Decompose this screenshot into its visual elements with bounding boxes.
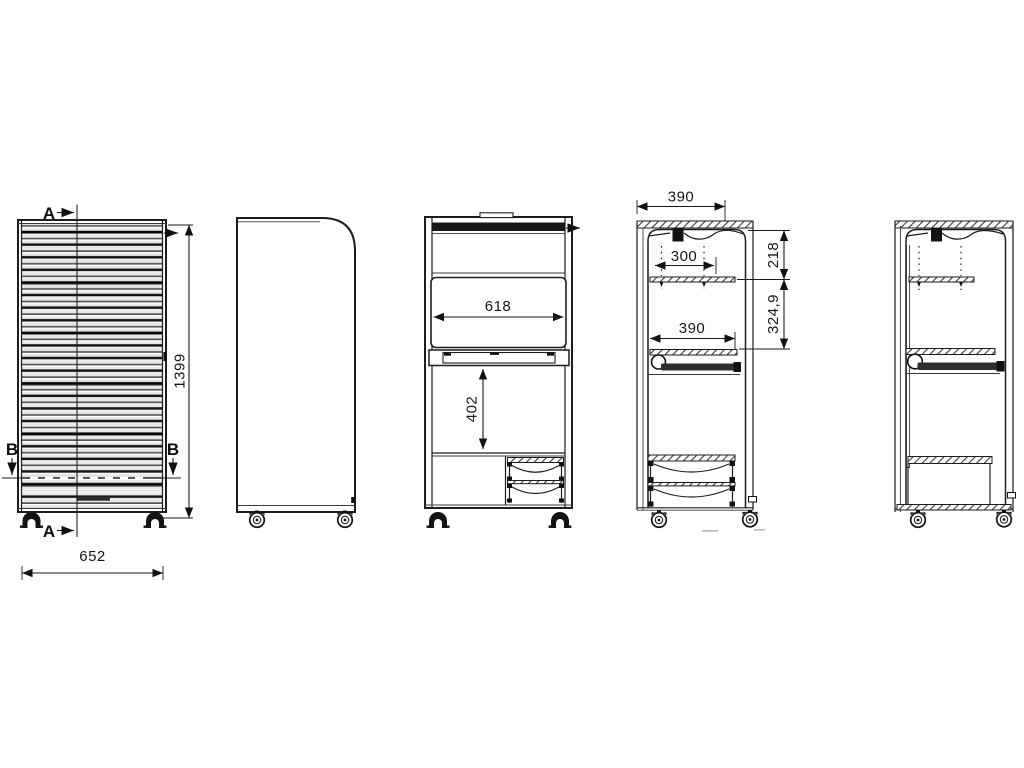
caster-icon — [250, 511, 265, 528]
pullout-tray-shelf — [650, 350, 737, 356]
caster-icon — [144, 512, 167, 528]
cabinet-body — [237, 218, 355, 512]
caster-icon — [652, 511, 667, 528]
caster-icon — [338, 511, 353, 528]
pullout-tray-shelf — [906, 349, 995, 355]
dimension-overall-height: 1399 — [160, 225, 193, 518]
dimension-overall-width: 652 — [22, 548, 163, 580]
section-label-a-top: A — [43, 204, 55, 223]
ground-mark — [754, 529, 765, 531]
top-panel-cut — [637, 221, 753, 228]
upper-shelf — [650, 277, 735, 287]
ground-mark — [702, 530, 718, 532]
section-label-b-left: B — [6, 440, 18, 459]
caster-mount — [1008, 493, 1016, 499]
dim-label-shelf-pin-span: 300 — [671, 248, 698, 265]
section-label-b-right: B — [167, 440, 179, 459]
side-section-view-b: 300 218 324,9 390 — [637, 189, 790, 532]
dim-label-shelf-to-tray: 324,9 — [765, 294, 782, 334]
front-section-view: 618 402 — [425, 213, 580, 528]
door-catch — [351, 497, 355, 503]
top-tab — [480, 213, 513, 218]
dim-label-height: 1399 — [172, 353, 189, 388]
upper-shelf — [909, 277, 974, 287]
bottom-panel-cut — [897, 505, 1011, 511]
dimension-tray-depth: 390 — [650, 320, 735, 352]
tray-slide-rod — [648, 355, 741, 375]
caster-mount — [749, 497, 757, 503]
dim-label-knee-clearance: 402 — [464, 396, 481, 423]
dim-label-top-to-shelf: 218 — [765, 242, 782, 269]
tambour-roll — [432, 223, 565, 232]
dim-label-width: 652 — [79, 548, 106, 565]
door-lock — [164, 352, 167, 361]
keyboard-tray — [429, 350, 569, 366]
caster-icon — [427, 512, 450, 528]
dimension-shelf-pin-span: 300 — [655, 248, 716, 274]
tray-slide-rod — [906, 354, 1005, 373]
cabinet-five-view-drawing: B B A A 1399 652 — [0, 0, 1024, 768]
dimension-knee-clearance: 402 — [464, 369, 484, 449]
cpu-compartment — [908, 457, 992, 505]
paper-tray-drawers — [648, 455, 735, 507]
dim-label-top-depth: 390 — [668, 189, 695, 206]
tambour-curve — [649, 230, 743, 239]
side-section-view-a — [895, 221, 1016, 527]
door-handle — [77, 497, 110, 501]
door-stop-tab — [931, 228, 942, 242]
dim-label-interior-width: 618 — [485, 298, 512, 315]
shelf-pin-holes — [919, 246, 961, 290]
top-panel-cut — [895, 221, 1013, 228]
tambour-door — [22, 224, 163, 508]
caster-icon — [549, 512, 572, 528]
caster-icon — [997, 510, 1012, 527]
dimension-shelf-to-tray: 324,9 — [739, 280, 790, 350]
caster-icon — [911, 511, 926, 528]
door-stop-tab — [673, 228, 684, 242]
dim-label-tray-depth: 390 — [679, 320, 706, 337]
technical-drawing-sheet: B B A A 1399 652 — [0, 0, 1024, 768]
caster-icon — [20, 512, 43, 528]
tambour-curve — [907, 230, 1003, 239]
dimension-top-depth: 390 — [637, 189, 725, 222]
paper-tray-drawers — [507, 458, 564, 504]
caster-icon — [743, 510, 758, 527]
front-view: B B A A 1399 652 — [2, 204, 193, 580]
section-label-a-bottom: A — [43, 522, 55, 541]
side-view — [237, 218, 355, 527]
